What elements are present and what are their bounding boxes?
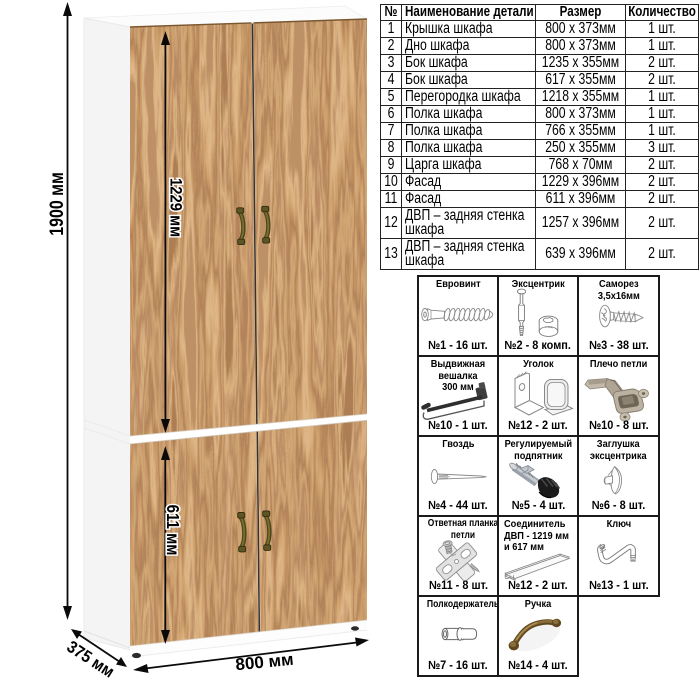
svg-text:1229 мм: 1229 мм	[166, 178, 184, 237]
svg-text:1900 мм: 1900 мм	[46, 172, 68, 236]
svg-text:611 мм: 611 мм	[163, 505, 182, 556]
svg-text:800 мм: 800 мм	[235, 650, 295, 674]
